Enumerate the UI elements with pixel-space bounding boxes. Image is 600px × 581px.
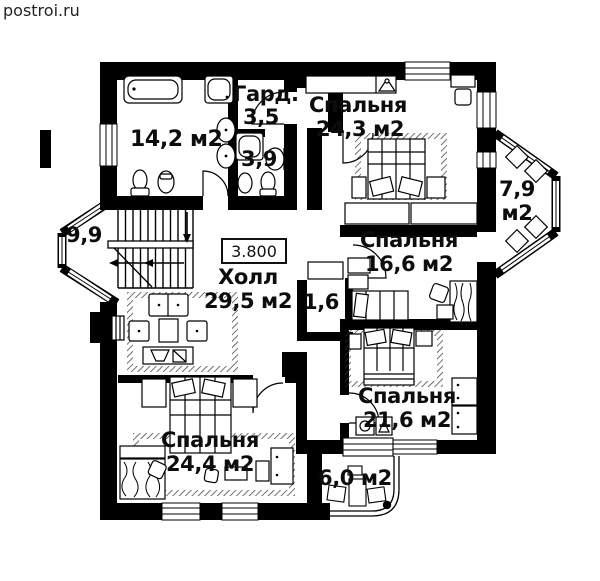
hall-furniture	[112, 294, 207, 364]
label-wc-area: 3,9	[241, 147, 277, 171]
label-wardrobe-name: Гард.	[233, 82, 299, 106]
staircase	[108, 208, 193, 288]
watermark-postroi: postroi.ru	[3, 1, 80, 20]
floor-plan-page: postroi.ru 14,2 м2 Гард. 3,5 3,9 Спальня…	[0, 0, 600, 581]
floor-plan-drawing	[0, 0, 600, 581]
label-wardrobe-area: 3,5	[243, 105, 279, 129]
label-bedroom-top: Спальня 24,3 м2	[309, 93, 407, 141]
label-stair-hall-area: 9,9	[66, 223, 102, 247]
label-balcony-right: 7,9 м2	[494, 177, 540, 225]
label-hall: Холл 29,5 м2	[202, 265, 294, 313]
label-balcony-bottom: 6,0 м2	[318, 466, 392, 490]
label-bathroom-area: 14,2 м2	[130, 128, 222, 152]
label-bedroom-mid: Спальня 16,6 м2	[358, 228, 460, 276]
label-closet-area: 1,6	[303, 290, 339, 314]
closet-storage	[308, 262, 343, 279]
label-bedroom-bottom-right: Спальня 21,6 м2	[356, 384, 458, 432]
elevation-mark: 3.800	[221, 238, 287, 264]
label-bedroom-bottom-left: Спальня 24,4 м2	[158, 428, 262, 476]
